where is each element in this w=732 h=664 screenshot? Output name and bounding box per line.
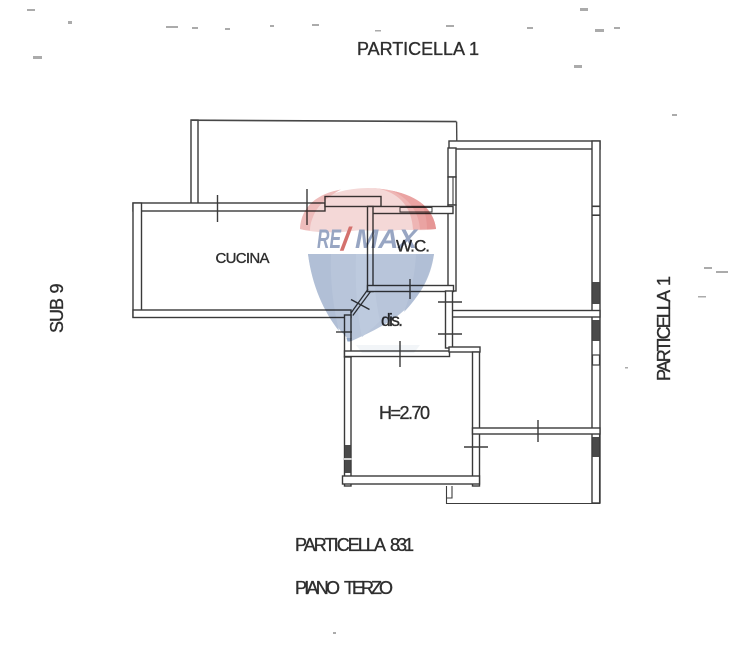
svg-text:TERZO: TERZO (344, 578, 393, 598)
svg-text:RE: RE (317, 224, 342, 254)
svg-text:PIANO: PIANO (295, 578, 340, 598)
svg-text:SUB: SUB (47, 298, 67, 333)
svg-text:PARTICELLA: PARTICELLA (654, 290, 674, 381)
svg-text:PARTICELLA: PARTICELLA (357, 39, 465, 59)
svg-text:831: 831 (390, 535, 414, 555)
svg-text:1: 1 (654, 276, 674, 286)
svg-text:9: 9 (47, 283, 67, 293)
svg-text:H=2.70: H=2.70 (379, 403, 430, 423)
svg-text:CUCINA: CUCINA (216, 250, 270, 267)
svg-text:MAX: MAX (355, 224, 419, 254)
svg-text:PARTICELLA: PARTICELLA (295, 535, 386, 555)
svg-text:1: 1 (469, 39, 479, 59)
